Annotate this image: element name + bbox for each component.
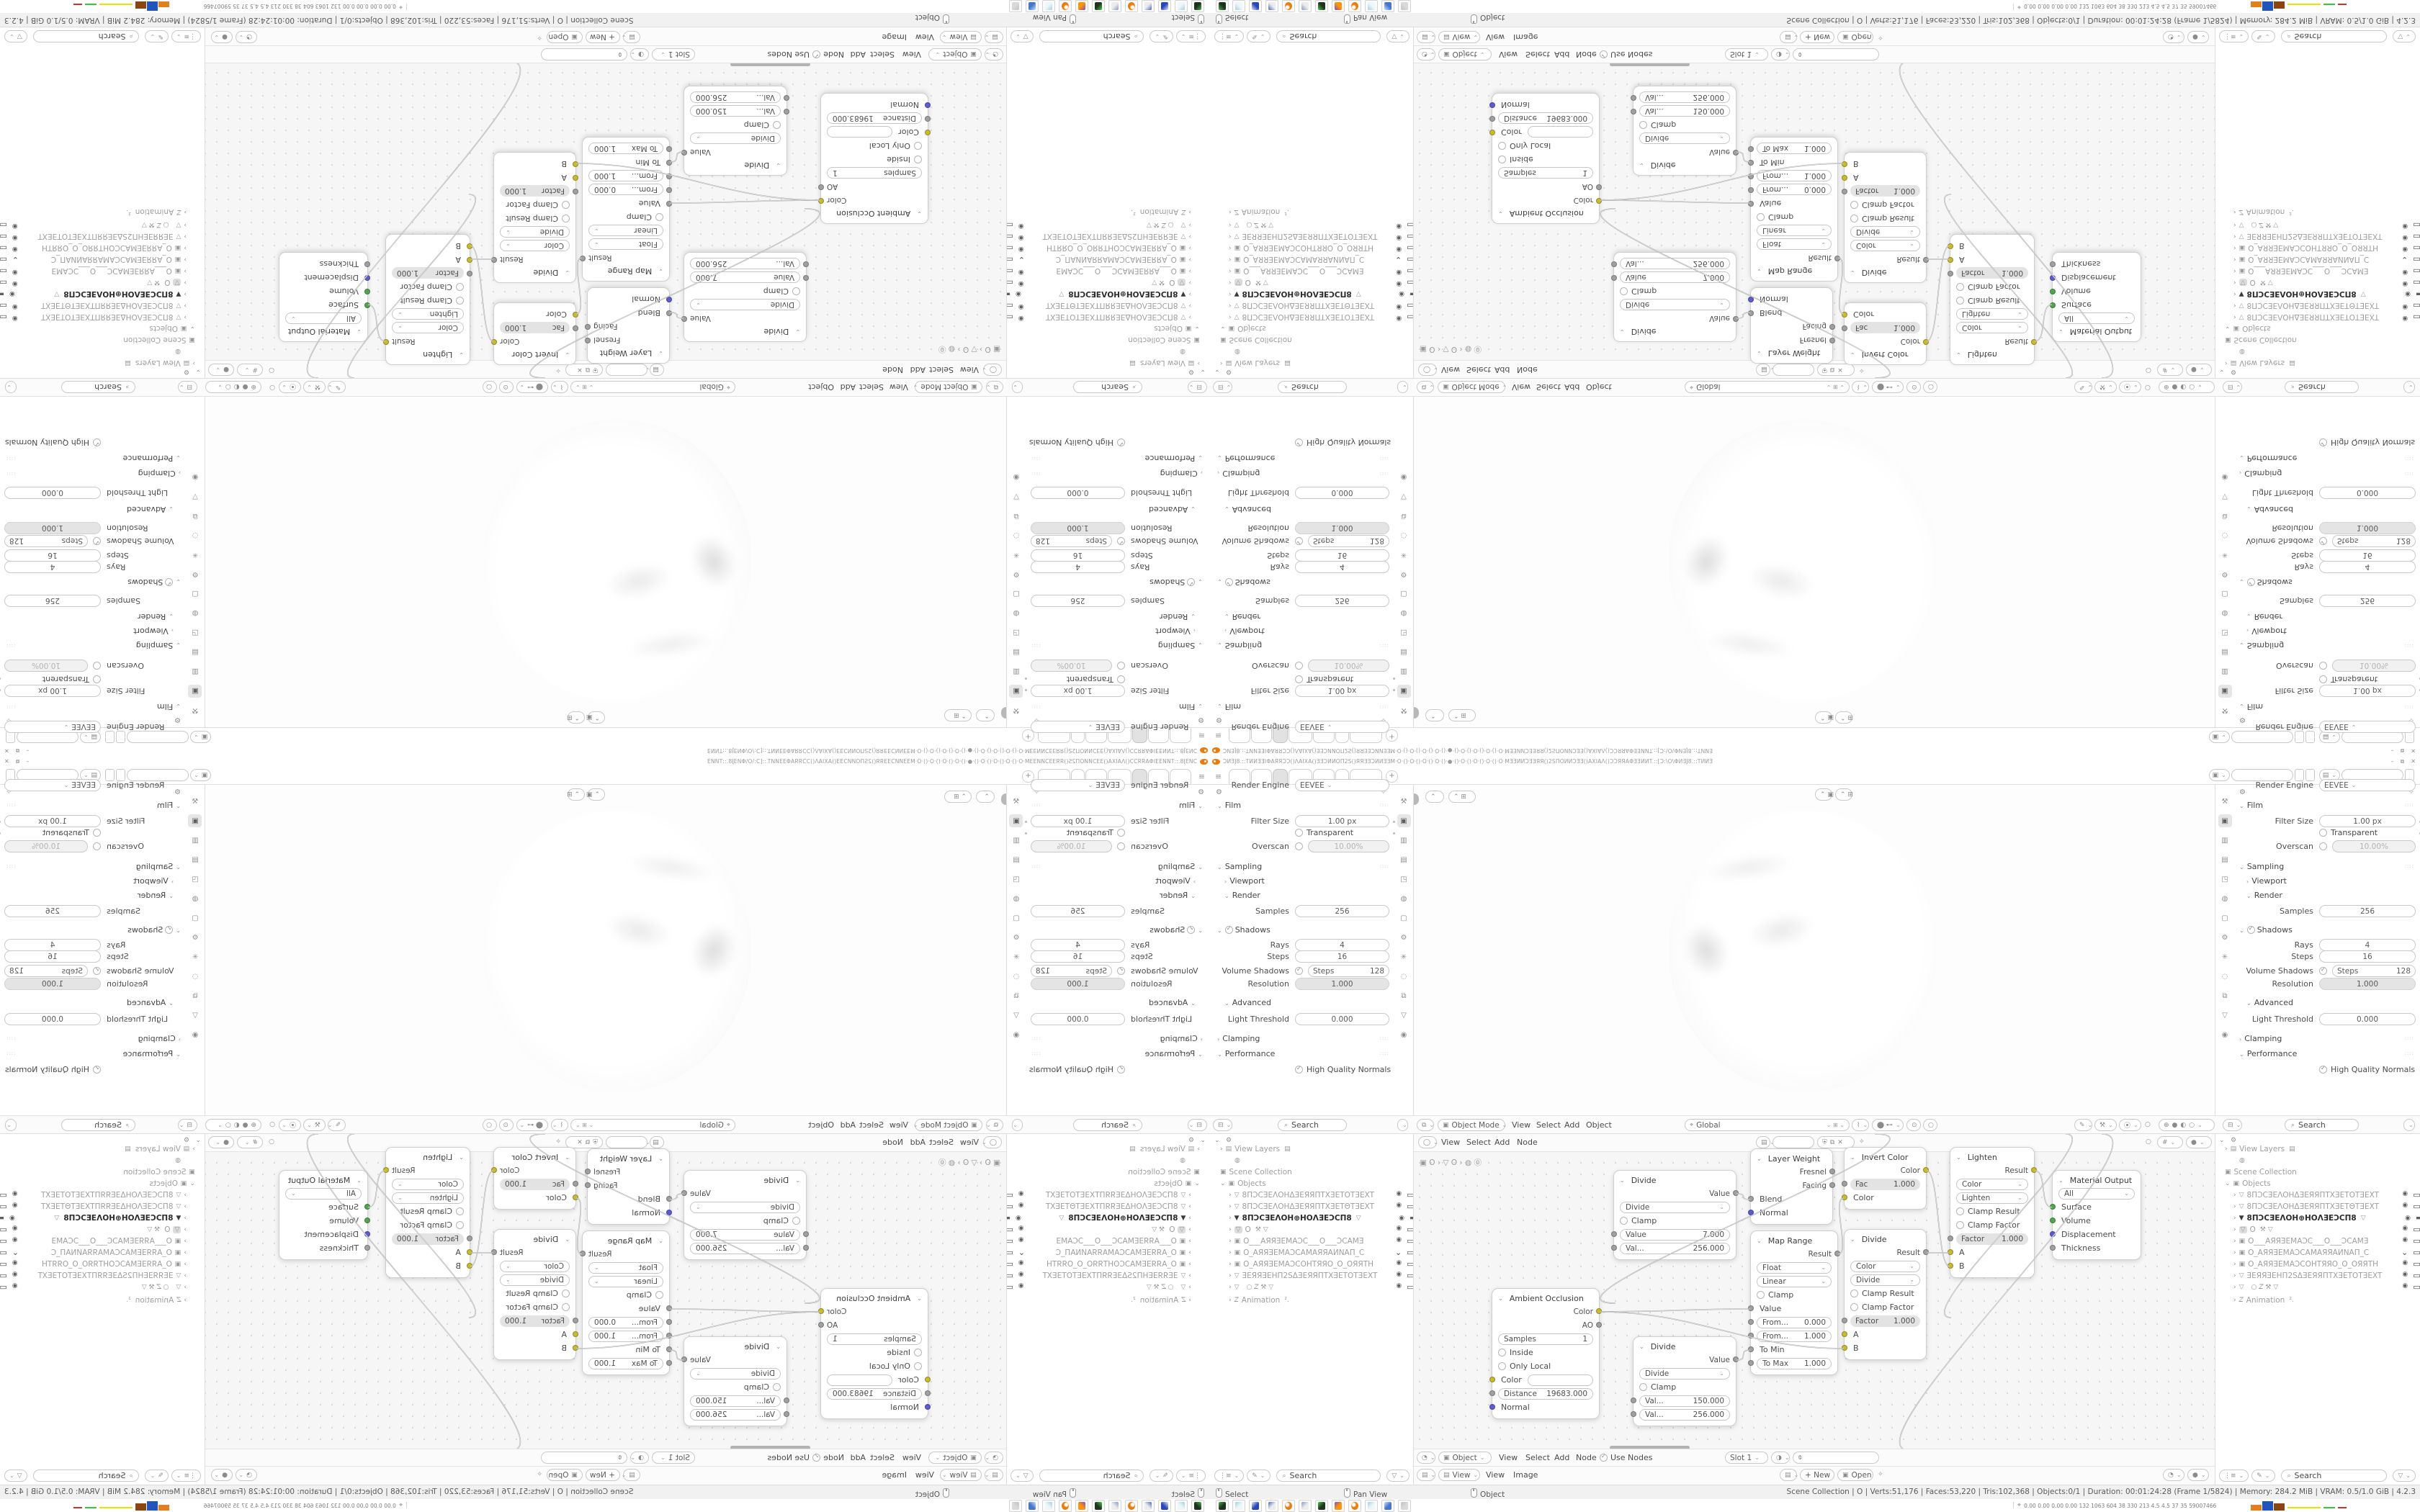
node-bottom-clock-button[interactable]: ◔⌄	[985, 48, 1003, 60]
node-checkbox-clamp-factor[interactable]	[456, 1221, 464, 1229]
sidebar-toggle-notch[interactable]	[1414, 793, 1419, 805]
eye-toggle-icon[interactable]: ◉	[1396, 266, 1402, 276]
input-socket-gray[interactable]	[784, 1398, 789, 1403]
input-socket-blue[interactable]	[1489, 102, 1495, 108]
node-layer-weight[interactable]: ⌄Layer WeightFresnelFacingBlendNormal	[587, 1148, 670, 1225]
use-nodes-checkbox[interactable]	[1600, 1454, 1608, 1462]
eye-toggle-icon[interactable]: ◉	[1018, 1282, 1024, 1292]
prop-rays-field[interactable]: 4	[2319, 561, 2416, 573]
node-value-distance[interactable]: Distance19683.000	[1498, 113, 1593, 125]
viewport-overlay-button-1[interactable]: ⊙	[1906, 381, 1921, 393]
shading-mode-2-icon[interactable]: ◐	[2180, 1122, 2186, 1129]
outliner-row-4[interactable]: ›▽8ПƆCƎEΛOHΔƎEЯЯПTXƎETOTƎEXT◉▭▣	[1006, 1189, 1210, 1200]
viewport-3d[interactable]: ⌃⌃ ⊞⌃ ▣⌃ ⊞	[205, 785, 1006, 1116]
eye-toggle-icon[interactable]: ◉	[1396, 301, 1402, 310]
prop-light-threshold-field[interactable]: 0.000	[1295, 487, 1389, 499]
node-overlay-circle[interactable]: ○	[269, 366, 274, 374]
section-header-advanced[interactable]: ⌄Advanced	[1149, 505, 1196, 515]
image-open-button[interactable]: ▣Open	[547, 1469, 583, 1481]
node-dropdown-divide[interactable]: Divide⌄	[690, 1202, 800, 1213]
shader-node-editor[interactable]: ◯⌄ViewSelectAddNode▤⌄⛨⧉✕✧○#⌄●⌄▣ O › ▽ O …	[1414, 1134, 2215, 1485]
documents-app-icon[interactable]	[1026, 1, 1039, 13]
viewport-overlay-circle-icon[interactable]: ○	[2145, 384, 2151, 391]
node-checkbox-inside[interactable]	[914, 156, 922, 163]
viewport-menu-view[interactable]: View	[889, 382, 908, 392]
outliner-row-8[interactable]: ›▣O___AЯЯƎEMAƆC___O___ƆCAMƎ◉▭▣	[2215, 266, 2420, 276]
node-value-from-[interactable]: From...0.000	[1757, 1317, 1832, 1328]
eye-toggle-icon[interactable]: ◉	[1399, 1215, 1404, 1222]
viewport-proportional-button[interactable]: ⬤ ⊷⌄	[1872, 1119, 1904, 1131]
section-checkbox[interactable]	[165, 926, 173, 934]
node-invert-color[interactable]: ⌄Invert ColorColorFac1.000Color	[493, 1147, 576, 1210]
section-checkbox[interactable]	[1225, 579, 1233, 587]
prop-light-threshold-field[interactable]: 0.000	[2319, 1013, 2416, 1025]
input-socket-gray[interactable]	[1748, 1196, 1754, 1202]
section-checkbox[interactable]	[165, 579, 173, 587]
row-caret-icon[interactable]: ⌄	[1194, 1180, 1200, 1187]
fake-user-icon[interactable]: ⛨	[1822, 366, 1827, 374]
node-collapse-icon[interactable]: ⌄	[917, 1295, 922, 1302]
outliner-row-13[interactable]: ›𝘡Animation².	[1210, 1295, 1414, 1305]
chev-toggle-icon[interactable]: ⌄	[12, 1248, 19, 1257]
row-caret-icon[interactable]: ›	[1229, 256, 1232, 264]
row-caret-icon[interactable]: ›	[1229, 1238, 1232, 1245]
section-header-film[interactable]: ⌄Film	[1217, 703, 1241, 712]
eye-toggle-icon[interactable]: ◉	[12, 278, 18, 287]
blender2-app-icon[interactable]	[1348, 1, 1361, 13]
image-new-button[interactable]: + New	[1800, 31, 1834, 43]
node-checkbox-clamp-result[interactable]	[456, 1207, 464, 1215]
section-header-viewport[interactable]: ›Viewport	[1155, 876, 1196, 886]
copy-icon[interactable]: ⧉	[1830, 1139, 1834, 1146]
chev-toggle-icon[interactable]: ⌄	[1395, 255, 1402, 264]
node-checkbox-clamp-factor[interactable]	[1850, 201, 1858, 209]
outliner-row-6[interactable]: ›▼8ПƆCƎEΛOH⊕HOΛƎEƆCП8▽◉▬▣	[1006, 1212, 1210, 1223]
node-collapse-icon[interactable]: ⌄	[2058, 329, 2063, 336]
node-bottom-menu-view[interactable]: View	[1499, 1453, 1518, 1462]
terminal-app-icon[interactable]	[1216, 1500, 1229, 1512]
node-collapse-icon[interactable]: ⌄	[1757, 1238, 1762, 1244]
node-checkbox-clamp-factor[interactable]	[456, 283, 464, 291]
eye-toggle-icon[interactable]: ◉	[12, 312, 18, 322]
node-bottom-menu-node[interactable]: Node	[1576, 50, 1597, 59]
use-nodes-toggle[interactable]: Use Nodes	[1600, 50, 1653, 59]
image-open-button[interactable]: ▣Open	[1837, 1469, 1873, 1481]
viewport-gizmo-button[interactable]: ⦿⌄	[2119, 381, 2141, 393]
outliner-row-1[interactable]: ◍	[2215, 346, 2420, 357]
node-bottom-mode-dropdown[interactable]: ▣Object⌄	[1438, 48, 1492, 60]
prop-checkbox-high-quality-normals[interactable]	[1295, 438, 1303, 446]
mon-toggle-icon[interactable]: ▭	[2413, 1202, 2420, 1211]
node-value-val-[interactable]: Val...256.000	[690, 1409, 781, 1421]
mon-toggle-icon[interactable]: ▭	[1006, 232, 1013, 241]
eye-toggle-icon[interactable]: ◉	[1396, 1259, 1402, 1269]
prop-light-threshold-field[interactable]: 0.000	[1295, 1013, 1389, 1025]
input-socket-blue[interactable]	[666, 297, 672, 302]
node-overlay-snap[interactable]: #⌄	[237, 1136, 263, 1148]
row-caret-icon[interactable]: ›	[1188, 233, 1191, 240]
prop-render-engine-dropdown[interactable]: EEVEE⌄	[4, 721, 101, 733]
input-socket-gray[interactable]	[1842, 1181, 1847, 1187]
output-socket-gray[interactable]	[681, 316, 687, 322]
notes2-app-icon[interactable]	[1365, 1500, 1378, 1512]
node-value-from-[interactable]: From...1.000	[1757, 1331, 1832, 1342]
node-top-menu-node[interactable]: Node	[1517, 1138, 1538, 1147]
prop-filter-size-field[interactable]: 1.00 px	[4, 815, 101, 827]
eye-toggle-icon[interactable]: ◉	[2402, 1202, 2408, 1211]
node-dropdown-divide[interactable]: Divide⌄	[1850, 1274, 1920, 1286]
input-socket-gray[interactable]	[1489, 1390, 1495, 1396]
chev-toggle-icon[interactable]: ⌄	[12, 255, 19, 264]
viewport-proportional-button[interactable]: ⬤ ⊷⌄	[516, 1119, 548, 1131]
row-caret-icon[interactable]: ›	[1188, 256, 1191, 264]
row-caret-icon[interactable]: ›	[184, 268, 187, 275]
row-caret-icon[interactable]: ›	[1188, 268, 1191, 275]
viewport-menu-add[interactable]: Add	[841, 1120, 856, 1130]
outliner-row-5[interactable]: ›▽8ПƆCƎEΛOHΔƎEЯЯПTXƎETΘTƎEXT◉▭▣	[0, 1201, 205, 1212]
outliner-row-7[interactable]: ›▽O⚒ ▽◉▭▣	[1210, 1224, 1414, 1235]
viewport-tool-button[interactable]: ⚒⌄	[2094, 381, 2117, 393]
input-socket-blue[interactable]	[666, 1210, 672, 1215]
input-socket-yellow[interactable]	[573, 1194, 578, 1200]
prop-checkbox-overscan[interactable]	[1117, 662, 1125, 670]
node-value-val-[interactable]: Val...256.000	[690, 258, 800, 270]
node-value-from-[interactable]: From...0.000	[1757, 184, 1832, 196]
row-caret-icon[interactable]: ›	[184, 291, 187, 298]
node-checkbox-only-local[interactable]	[1498, 1362, 1506, 1370]
node-value-val-[interactable]: Val...256.000	[690, 1243, 800, 1254]
node-top-type-button[interactable]: ◯⌄	[1418, 364, 1437, 376]
row-caret-icon[interactable]: ›	[2233, 302, 2236, 310]
prop-resolution-field[interactable]: 1.000	[1295, 978, 1389, 990]
node-header-invert-color[interactable]: ⌄Invert Color	[494, 1151, 575, 1164]
prop-render-engine-dropdown[interactable]: EEVEE⌄	[1031, 779, 1125, 791]
calculator2-app-icon[interactable]	[1108, 1, 1121, 13]
image-datablock-button[interactable]: ▤⌄	[1780, 1469, 1797, 1481]
mon-toggle-icon[interactable]: ▭	[0, 1202, 7, 1211]
mon-toggle-icon[interactable]: ▭	[1006, 301, 1013, 310]
node-value-samples[interactable]: Samples1	[827, 168, 922, 179]
node-divide-b[interactable]: ⌄DivideValueDivide⌄ClampVal...150.000Val…	[1633, 1336, 1736, 1426]
outliner-row-13[interactable]: ›𝘡Animation².	[2215, 1295, 2420, 1305]
row-caret-icon[interactable]: ›	[1229, 222, 1232, 229]
prop-overscan-field[interactable]: 10.00%	[1308, 840, 1389, 852]
blender-app-icon[interactable]	[1282, 1, 1295, 13]
input-socket-gray[interactable]	[364, 261, 370, 267]
input-socket-gray[interactable]	[573, 1181, 578, 1187]
node-header-divide-b[interactable]: ⌄Divide	[1633, 1340, 1736, 1353]
section-header-sampling[interactable]: ⌄Sampling	[1217, 642, 1262, 651]
input-socket-yellow[interactable]	[573, 312, 578, 318]
viewport-editor-type-button[interactable]: ⧉⌄	[1417, 381, 1434, 393]
node-header-ambient-occlusion[interactable]: ⌄Ambient Occlusion	[821, 207, 928, 220]
viewport-editor-type-button[interactable]: ⧉⌄	[1417, 1119, 1434, 1131]
node-value-from-[interactable]: From...0.000	[588, 1317, 663, 1328]
viewport-proportional-button[interactable]: ⬤ ⊷⌄	[516, 381, 548, 393]
node-collapse-icon[interactable]: ⌄	[917, 211, 922, 217]
prop-rays-field[interactable]: 4	[1031, 561, 1125, 573]
eye-toggle-icon[interactable]: ◉	[1396, 312, 1402, 322]
node-value-fac[interactable]: Fac1.000	[1850, 323, 1920, 334]
prop-render-engine-dropdown[interactable]: EEVEE⌄	[2319, 721, 2416, 733]
outliner-row-10[interactable]: ›▣O_AЯЯƎEMAƆCOHTЯЯO_O_OЯЯTH◉▭▣	[1006, 1259, 1210, 1269]
prop-checkbox-volume-shadows[interactable]	[93, 537, 101, 545]
output-socket-yellow[interactable]	[2031, 339, 2037, 345]
node-value-distance[interactable]: Distance19683.000	[827, 113, 922, 125]
eye-toggle-icon[interactable]: ◉	[9, 1215, 15, 1222]
blender2-app-icon[interactable]	[1348, 1500, 1361, 1512]
output-socket-yellow[interactable]	[491, 339, 497, 345]
input-socket-gray[interactable]	[1748, 160, 1754, 166]
outliner-row-13[interactable]: ›𝘡Animation².	[1006, 1295, 1210, 1305]
image-right-button-1[interactable]: ◔⌄	[236, 1469, 257, 1481]
outliner-row-2[interactable]: ▣Scene Collection	[2215, 335, 2420, 346]
prop-steps-field[interactable]: 16	[1295, 950, 1389, 963]
outliner-search-input[interactable]: ⌕Search	[1039, 1470, 1144, 1482]
node-overlay-shading[interactable]: ●⌄	[208, 1136, 234, 1148]
prop-samples-field[interactable]: 256	[1295, 595, 1389, 607]
firefox-app-icon[interactable]	[1332, 1, 1345, 13]
node-value-distance[interactable]: Distance19683.000	[1498, 1388, 1593, 1400]
input-socket-gray[interactable]	[1611, 275, 1617, 281]
outliner-row-8[interactable]: ›▣O___AЯЯƎEMAƆC___O___ƆCAMƎ◉▭▣	[1210, 1236, 1414, 1246]
row-caret-icon[interactable]: ⌄	[189, 1180, 195, 1187]
node-checkbox-clamp[interactable]	[792, 287, 800, 295]
props-right-search-input[interactable]: ⌕Search	[2285, 381, 2359, 393]
unlink-icon[interactable]: ✕	[577, 366, 583, 374]
viewport-menu-add[interactable]: Add	[1564, 1120, 1579, 1130]
node-dropdown-divide[interactable]: Divide⌄	[1620, 1202, 1730, 1213]
node-value-value[interactable]: Value7.000	[690, 1229, 800, 1241]
node-top-menu-node[interactable]: Node	[882, 1138, 903, 1147]
outliner-row-1[interactable]: ◍	[0, 346, 205, 357]
row-caret-icon[interactable]: ›	[1229, 268, 1232, 275]
copy-icon[interactable]: ⧉	[586, 366, 590, 374]
node-overlay-snap[interactable]: #⌄	[2157, 364, 2183, 376]
prop-overscan-field[interactable]: 10.00%	[4, 660, 88, 672]
section-checkbox[interactable]	[1187, 579, 1195, 587]
section-header-film[interactable]: ⌄Film	[2239, 801, 2263, 810]
node-collapse-icon[interactable]: ⌄	[1639, 1344, 1644, 1350]
outliner-row-2[interactable]: ▣Scene Collection	[0, 335, 205, 346]
node-divide-b[interactable]: ⌄DivideValueDivide⌄ClampVal...150.000Val…	[1633, 86, 1736, 176]
row-caret-icon[interactable]: ›	[1197, 360, 1200, 367]
output-socket-gray[interactable]	[1829, 1182, 1835, 1188]
mon-toggle-icon[interactable]: ▭	[0, 266, 7, 276]
outliner-mode-button[interactable]: ✎⌄	[2251, 1470, 2275, 1482]
outliner-row-8[interactable]: ›▣O___AЯЯƎEMAƆC___O___ƆCAMƎ◉▭▣	[2215, 1236, 2420, 1246]
node-collapse-icon[interactable]: ⌄	[1757, 269, 1762, 275]
input-socket-green[interactable]	[2050, 1218, 2056, 1223]
notes-app-icon[interactable]	[1175, 1, 1188, 13]
eye-toggle-icon[interactable]: ◉	[1396, 1236, 1402, 1246]
node-header-material-output[interactable]: ⌄Material Output	[2053, 1174, 2141, 1187]
eye-toggle-icon[interactable]: ◉	[1399, 291, 1404, 298]
outliner-filter-icon[interactable]: ⚙	[1188, 368, 1194, 375]
viewport-tool-button[interactable]: ⚒⌄	[303, 381, 326, 393]
output-socket-gray[interactable]	[585, 338, 591, 343]
node-checkbox-clamp-factor[interactable]	[1956, 283, 1964, 291]
row-caret-icon[interactable]: ›	[1229, 1249, 1232, 1256]
node-dropdown-all[interactable]: All⌄	[285, 1188, 362, 1200]
eye-toggle-icon[interactable]: ◉	[12, 1225, 18, 1234]
material-slot-dropdown[interactable]: Slot 1⌄	[1725, 1452, 1768, 1464]
section-header-clamping[interactable]: ›Clamping	[2239, 469, 2282, 479]
blender2-app-icon[interactable]	[1059, 1, 1072, 13]
eye-toggle-icon[interactable]: ◉	[2402, 278, 2408, 287]
node-value-factor[interactable]: Factor1.000	[500, 1315, 570, 1327]
viewport-overlay-button-2[interactable]: ○	[1923, 1119, 1937, 1131]
image-right-button-1[interactable]: ◔⌄	[236, 31, 257, 43]
node-header-invert-color[interactable]: ⌄Invert Color	[494, 348, 575, 361]
mon-on-toggle-icon[interactable]: ▬	[2416, 1215, 2420, 1222]
outliner-row-9[interactable]: ›▣O_AЯЯƎEMAƆCAMAЯЯAИNAП_C⌄▭▣	[1210, 254, 1414, 265]
input-socket-gray[interactable]	[573, 1318, 578, 1323]
eye-toggle-icon[interactable]: ◉	[1018, 301, 1024, 310]
image-menu-view[interactable]: View	[915, 1470, 934, 1480]
eye-toggle-icon[interactable]: ◉	[1396, 1225, 1402, 1234]
viewport-mode-dropdown[interactable]: ▣Object Mode⌄	[1438, 1119, 1505, 1131]
section-header-viewport[interactable]: ›Viewport	[2246, 876, 2287, 886]
output-socket-gray[interactable]	[681, 1356, 687, 1362]
eye-toggle-icon[interactable]: ◉	[12, 232, 18, 241]
outliner-row-13[interactable]: ›𝘡Animation².	[0, 207, 205, 217]
input-socket-gray[interactable]	[1948, 271, 1953, 276]
node-dropdown-color[interactable]: Color⌄	[392, 323, 464, 334]
section-header-advanced[interactable]: ⌄Advanced	[2246, 505, 2293, 515]
output-socket-yellow[interactable]	[1923, 1167, 1929, 1173]
input-socket-gray[interactable]	[1748, 146, 1754, 152]
row-caret-icon[interactable]: ›	[1229, 1272, 1232, 1279]
section-checkbox[interactable]	[1187, 926, 1195, 934]
node-collapse-icon[interactable]: ⌄	[459, 352, 464, 359]
outliner-row-3[interactable]: ⌄▣Objects	[1006, 1178, 1210, 1189]
section-header-shadows[interactable]: ⌄Shadows	[1149, 578, 1203, 588]
row-caret-icon[interactable]: ›	[1229, 245, 1232, 252]
mon-toggle-icon[interactable]: ▭	[0, 1236, 7, 1246]
node-value-factor[interactable]: Factor1.000	[1956, 1233, 2028, 1245]
node-collapse-icon[interactable]: ⌄	[776, 163, 781, 169]
node-dropdown-float[interactable]: Float⌄	[588, 239, 663, 251]
image-view-dropdown[interactable]: ▤View⌄	[1438, 31, 1480, 43]
input-socket-blue[interactable]	[1748, 297, 1754, 302]
viewport-snap-button[interactable]: ⌇⌄	[551, 381, 568, 393]
eye-toggle-icon[interactable]: ◉	[2402, 1271, 2408, 1280]
outliner-row-2[interactable]: ▣Scene Collection	[1006, 1166, 1210, 1177]
viewport-mode-dropdown[interactable]: ▣Object Mode⌄	[915, 381, 982, 393]
chev-toggle-icon[interactable]: ⌄	[1018, 255, 1025, 264]
outliner-mode-button[interactable]: ✎⌄	[1247, 30, 1270, 42]
section-header-viewport[interactable]: ›Viewport	[133, 876, 174, 886]
node-checkbox-clamp[interactable]	[1757, 1291, 1765, 1299]
output-socket-yellow[interactable]	[491, 1167, 497, 1173]
prop-samples-field[interactable]: 256	[1031, 595, 1125, 607]
node-header-invert-color[interactable]: ⌄Invert Color	[1845, 348, 1926, 361]
node-ambient-occlusion[interactable]: ⌄Ambient OcclusionColorAOSamples1InsideO…	[820, 1288, 928, 1419]
outliner-display-mode-button[interactable]: ⋮≡⌄	[1176, 30, 1206, 42]
eye-toggle-icon[interactable]: ◉	[1018, 1259, 1024, 1269]
node-dropdown-color[interactable]: Color⌄	[1956, 323, 2028, 334]
prop-checkbox-volume-shadows[interactable]	[1117, 967, 1125, 975]
node-checkbox-clamp[interactable]	[1620, 287, 1628, 295]
image-right-button-2[interactable]: ●⌄	[211, 31, 233, 43]
outliner-row-2[interactable]: ▣Scene Collection	[1006, 335, 1210, 346]
prop-overscan-field[interactable]: 10.00%	[4, 840, 88, 852]
input-socket-gray[interactable]	[666, 1333, 672, 1338]
viewport-menu-add[interactable]: Add	[841, 382, 856, 392]
prop-volume-shadows-steps-field[interactable]: Steps128	[4, 535, 88, 547]
outliner-row-5[interactable]: ›▽8ПƆCƎEΛOHΔƎEЯЯПTXƎETΘTƎEXT◉▭▣	[2215, 300, 2420, 311]
row-caret-icon[interactable]: ›	[184, 1238, 187, 1245]
outliner-row-0[interactable]: ›▤View Layers▤	[0, 1143, 205, 1154]
node-dropdown-divide[interactable]: Divide⌄	[690, 300, 800, 311]
outliner-display-mode-button[interactable]: ⋮≡⌄	[171, 1470, 201, 1482]
mon-toggle-icon[interactable]: ▭	[2413, 1271, 2420, 1280]
node-value-val-[interactable]: Val...150.000	[690, 1395, 781, 1407]
node-lighten[interactable]: ⌄LightenResultColor⌄Lighten⌄Clamp Result…	[385, 234, 470, 365]
output-socket-gray[interactable]	[818, 184, 824, 190]
mouse-grayed-app-icon[interactable]	[1009, 1500, 1022, 1512]
mon-toggle-icon[interactable]: ▭	[1006, 255, 1013, 264]
input-socket-yellow[interactable]	[1842, 312, 1847, 318]
eye-toggle-icon[interactable]: ◉	[2402, 220, 2408, 230]
viewport-tool-button[interactable]: ⚒⌄	[303, 1119, 326, 1131]
outliner-display-mode-button[interactable]: ⋮≡⌄	[171, 30, 201, 42]
eye-toggle-icon[interactable]: ◉	[1018, 1225, 1024, 1234]
section-header-render[interactable]: ⌄Render	[2246, 613, 2282, 622]
material-picker-button[interactable]: ◑⌄	[630, 48, 649, 60]
row-caret-icon[interactable]: ›	[184, 1261, 187, 1268]
input-socket-gray[interactable]	[1748, 201, 1754, 207]
viewport-menu-select[interactable]: Select	[859, 1120, 884, 1130]
props-left-editor-type-button[interactable]: ⊟⌄	[1213, 1119, 1232, 1131]
node-bottom-menu-node[interactable]: Node	[1576, 1453, 1597, 1462]
row-caret-icon[interactable]: ⌄	[1220, 325, 1226, 333]
mon-toggle-icon[interactable]: ▭	[0, 1190, 7, 1200]
shading-mode-3-icon[interactable]: ○	[225, 1122, 231, 1129]
eye-toggle-icon[interactable]: ◉	[1018, 243, 1024, 253]
node-invert-color[interactable]: ⌄Invert ColorColorFac1.000Color	[1844, 1147, 1927, 1210]
node-dropdown-lighten[interactable]: Lighten⌄	[392, 309, 464, 320]
props-left-search-input[interactable]: ⌕Search	[1278, 381, 1347, 393]
mon-on-toggle-icon[interactable]: ▬	[1006, 1215, 1010, 1222]
section-header-performance[interactable]: ⌄Performance	[1217, 454, 1275, 464]
outliner-filter-button[interactable]: ▽⌄	[4, 1470, 27, 1482]
prop-light-threshold-field[interactable]: 0.000	[2319, 487, 2416, 499]
node-header-map-range[interactable]: ⌄Map Range	[583, 1234, 669, 1247]
node-header-ambient-occlusion[interactable]: ⌄Ambient Occlusion	[1492, 1292, 1599, 1305]
mon-toggle-icon[interactable]: ▭	[0, 232, 7, 241]
node-header-invert-color[interactable]: ⌄Invert Color	[1845, 1151, 1926, 1164]
node-dropdown-all[interactable]: All⌄	[2058, 1188, 2135, 1200]
mon-toggle-icon[interactable]: ▭	[1407, 220, 1414, 230]
outliner-row-11[interactable]: ›▽ƎEЯЯƎEHП2SΔƎEЯЯПTXƎETOTƎEXT◉▭▣	[0, 1270, 205, 1281]
node-material-output[interactable]: ⌄Material OutputAll⌄SurfaceVolumeDisplac…	[279, 1170, 368, 1260]
props-left-collapse-button[interactable]: ⌄	[1012, 1119, 1023, 1131]
row-caret-icon[interactable]: ›	[2233, 245, 2236, 252]
node-dropdown-lighten[interactable]: Lighten⌄	[392, 1192, 464, 1204]
row-caret-icon[interactable]: ›	[1188, 1215, 1191, 1222]
row-caret-icon[interactable]: ›	[2233, 222, 2236, 229]
section-header-shadows[interactable]: ⌄Shadows	[2239, 925, 2293, 935]
prop-steps-field[interactable]: 16	[1031, 549, 1125, 562]
node-dropdown-color[interactable]: Color⌄	[1850, 240, 1920, 252]
output-socket-gray[interactable]	[1733, 1356, 1739, 1362]
node-bottom-menu-add[interactable]: Add	[851, 1453, 866, 1462]
row-caret-icon[interactable]: ›	[1229, 1284, 1232, 1291]
notes-app-icon[interactable]	[1175, 1500, 1188, 1512]
output-socket-gray[interactable]	[580, 1251, 586, 1256]
